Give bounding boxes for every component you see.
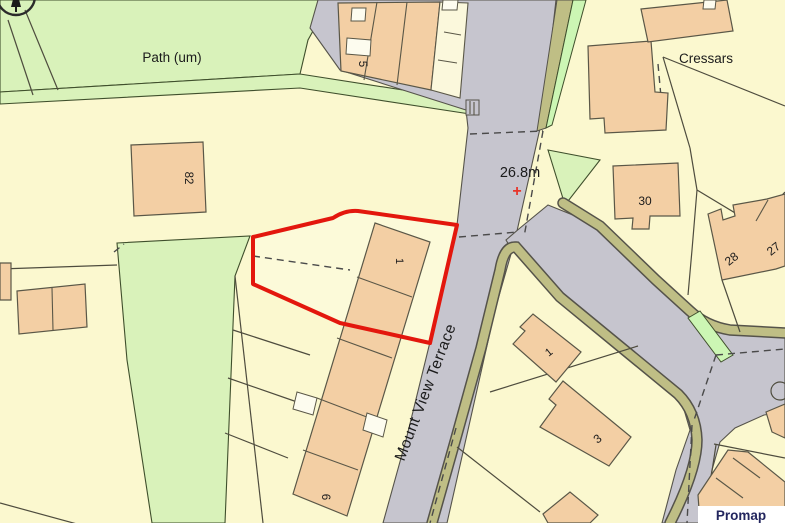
map-viewport[interactable]: Path (um) Cressars 26.8m + Mount View Te…: [0, 0, 785, 523]
label-no-6: 6: [319, 494, 331, 500]
label-no-30: 30: [638, 194, 652, 208]
label-no-82: 82: [182, 172, 194, 185]
label-path-um: Path (um): [142, 50, 201, 65]
building-partial-left: [0, 263, 11, 300]
map-canvas[interactable]: Path (um) Cressars 26.8m + Mount View Te…: [0, 0, 785, 523]
steps: [466, 100, 479, 115]
label-no-5: 5: [356, 61, 368, 67]
building-annex: [703, 0, 716, 9]
label-benchmark: 26.8m: [500, 165, 540, 181]
label-cressars: Cressars: [679, 51, 733, 66]
building-annex: [346, 38, 371, 56]
label-site-no-1: 1: [393, 258, 405, 264]
building-annex: [351, 8, 366, 21]
building-annex: [442, 0, 458, 10]
promap-watermark: Promap: [716, 508, 766, 523]
benchmark-cross-icon: +: [512, 183, 521, 200]
